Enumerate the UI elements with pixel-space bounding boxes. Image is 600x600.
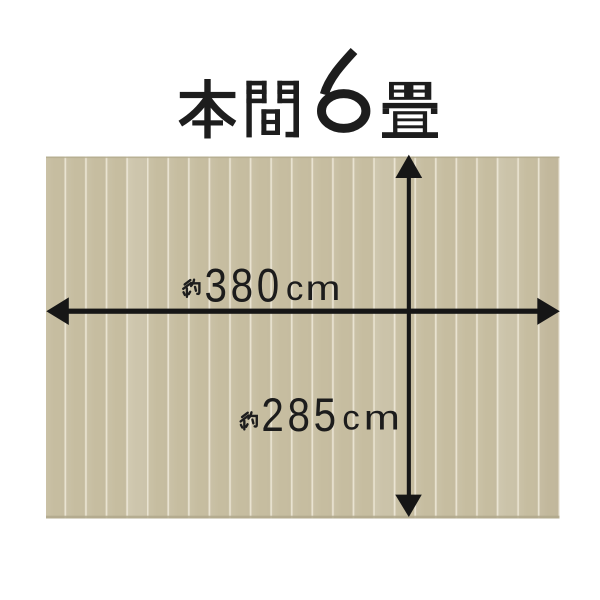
svg-text:m: m bbox=[364, 398, 400, 437]
svg-text:285: 285 bbox=[261, 389, 339, 442]
svg-text:380: 380 bbox=[205, 260, 283, 313]
svg-text:m: m bbox=[306, 269, 341, 308]
svg-text:c: c bbox=[286, 269, 304, 308]
svg-text:c: c bbox=[342, 398, 360, 437]
